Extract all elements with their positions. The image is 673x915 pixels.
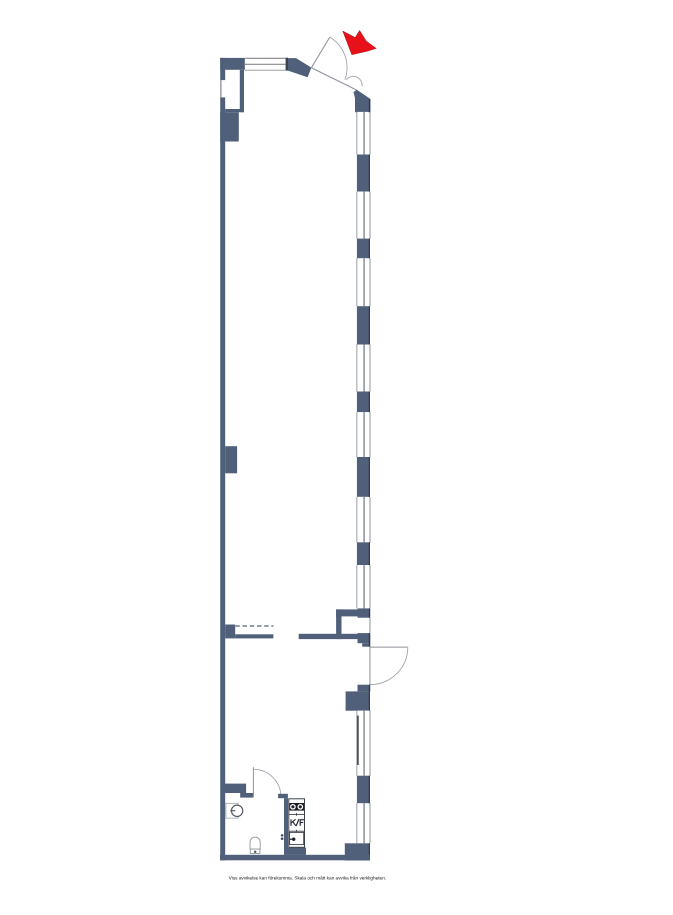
svg-text:Viss avvikelse kan förekomma.: Viss avvikelse kan förekomma. Skala och … <box>229 876 386 881</box>
